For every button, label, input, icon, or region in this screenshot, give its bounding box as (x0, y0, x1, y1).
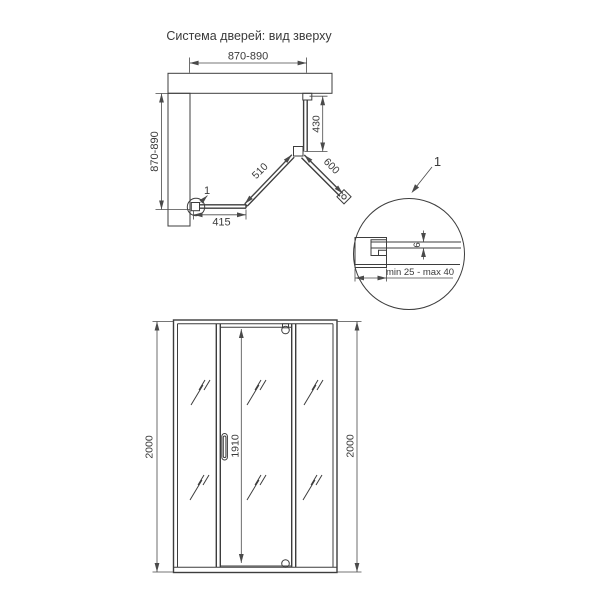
brick-wall-left (168, 93, 190, 226)
drawing-title: Система дверей: вид зверху (166, 29, 332, 43)
glass-hatch-marks (190, 380, 323, 500)
frame-outer (174, 320, 338, 573)
detail-callout-arrowhead (412, 184, 420, 193)
dim-adjustment-range-label: min 25 - max 40 (386, 267, 454, 278)
pivot-top (282, 324, 290, 334)
detail-view: 1 6 min 25 - max 40 (354, 154, 465, 310)
dim-bottom-panel: 415 (194, 210, 247, 229)
dim-fixed-panel: 510 (245, 155, 292, 204)
bottom-glass-panel (200, 205, 247, 208)
technical-drawing-canvas: Система дверей: вид зверху 1 870-890 (0, 0, 600, 600)
dim-bottom-panel-label: 415 (212, 217, 230, 229)
detail-marker-label: 1 (204, 185, 210, 197)
dim-width: 870-890 (190, 51, 307, 73)
technical-drawing-page: Система дверей: вид зверху 1 870-890 (0, 0, 600, 600)
mullion-left (216, 324, 220, 568)
dim-height-left: 2000 (144, 322, 174, 573)
front-view: 1910 2000 2000 (144, 320, 362, 573)
wall-profile-bracket (303, 93, 312, 100)
fixed-diagonal-panel (245, 155, 294, 206)
dim-glass-thickness-label: 6 (412, 242, 423, 247)
dim-width-label: 870-890 (228, 51, 268, 63)
detail-callout-arrow (415, 167, 433, 189)
door-end-cap (337, 190, 351, 204)
dim-depth-label: 870-890 (149, 131, 161, 171)
dim-door: 600 (304, 155, 343, 194)
door-handle (222, 434, 228, 461)
side-glass-panel (304, 100, 308, 152)
dim-fixed-panel-label: 510 (250, 161, 271, 182)
dim-height-right-label: 2000 (345, 434, 357, 458)
dim-door-height-label: 1910 (230, 434, 242, 458)
corner-profile (191, 203, 199, 211)
dim-height-left-label: 2000 (144, 435, 156, 459)
dim-side-panel: 430 (305, 96, 328, 151)
door-hinge (294, 147, 304, 157)
dim-depth: 870-890 (149, 94, 190, 210)
dim-height-right: 2000 (337, 322, 362, 573)
detail-callout-label: 1 (434, 154, 441, 169)
dim-glass-thickness: 6 (412, 231, 424, 260)
detail-circle (354, 199, 465, 310)
mullion-right (292, 324, 296, 568)
dim-door-height: 1910 (230, 329, 242, 563)
frame-inner (174, 324, 338, 568)
brick-wall-top (168, 73, 332, 93)
top-view: 1 870-890 870-890 430 510 600 (149, 51, 351, 229)
dim-side-panel-label: 430 (311, 115, 323, 133)
dim-adjustment-range: min 25 - max 40 (355, 267, 454, 282)
door-panel-open (302, 155, 343, 196)
